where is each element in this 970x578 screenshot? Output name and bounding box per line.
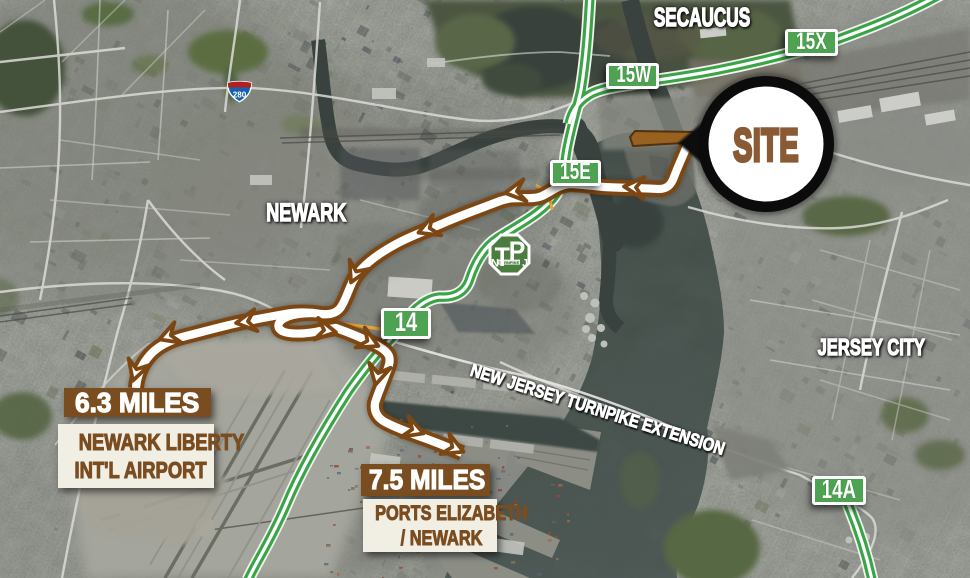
svg-text:N: N <box>491 258 499 270</box>
svg-text:J: J <box>522 257 528 269</box>
svg-text:280: 280 <box>233 90 247 99</box>
